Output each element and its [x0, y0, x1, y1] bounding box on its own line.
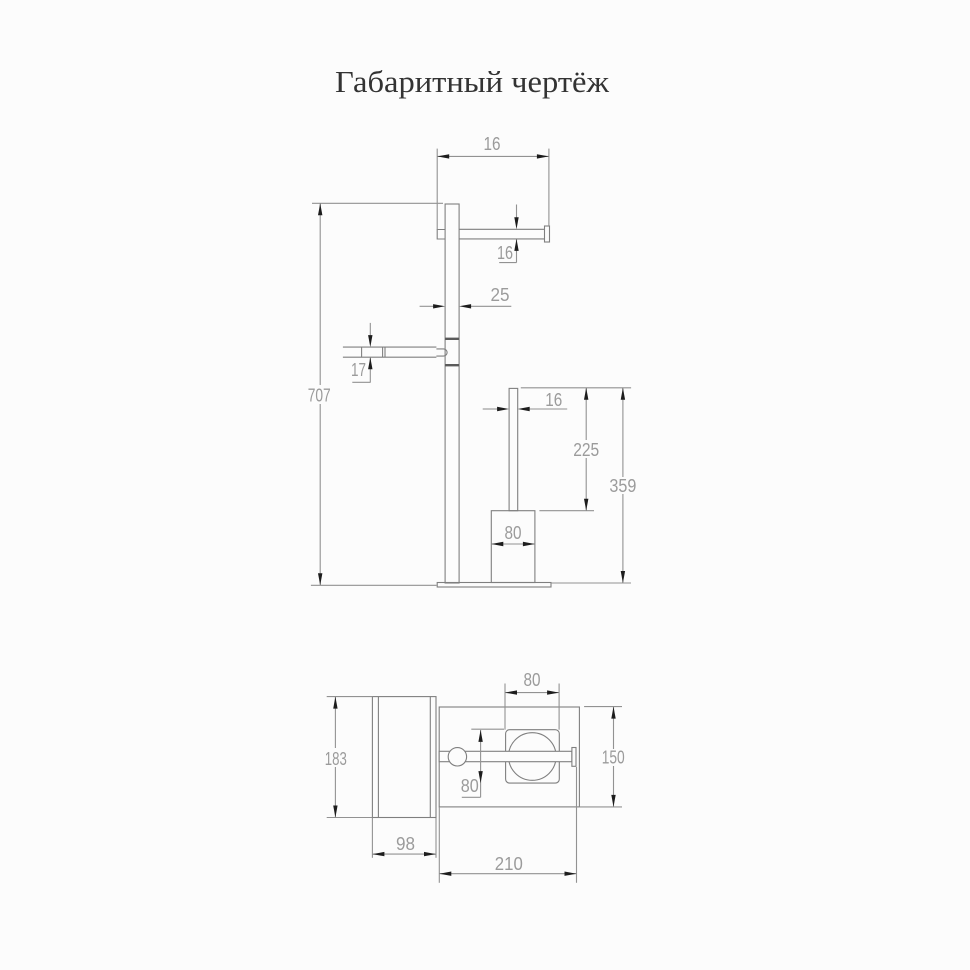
- svg-text:707: 707: [308, 386, 331, 406]
- svg-text:80: 80: [461, 776, 479, 796]
- svg-text:150: 150: [602, 748, 625, 768]
- svg-text:16: 16: [545, 390, 562, 410]
- svg-text:16: 16: [497, 243, 513, 263]
- svg-text:17: 17: [351, 360, 366, 380]
- svg-text:80: 80: [505, 523, 522, 543]
- svg-text:210: 210: [495, 854, 523, 874]
- svg-text:16: 16: [484, 134, 501, 154]
- svg-text:98: 98: [396, 834, 415, 854]
- svg-text:Габаритный чертёж: Габаритный чертёж: [335, 64, 610, 99]
- svg-text:183: 183: [325, 749, 347, 769]
- svg-text:25: 25: [491, 285, 510, 305]
- svg-text:225: 225: [573, 440, 599, 460]
- svg-text:80: 80: [524, 670, 541, 690]
- svg-text:359: 359: [609, 476, 636, 496]
